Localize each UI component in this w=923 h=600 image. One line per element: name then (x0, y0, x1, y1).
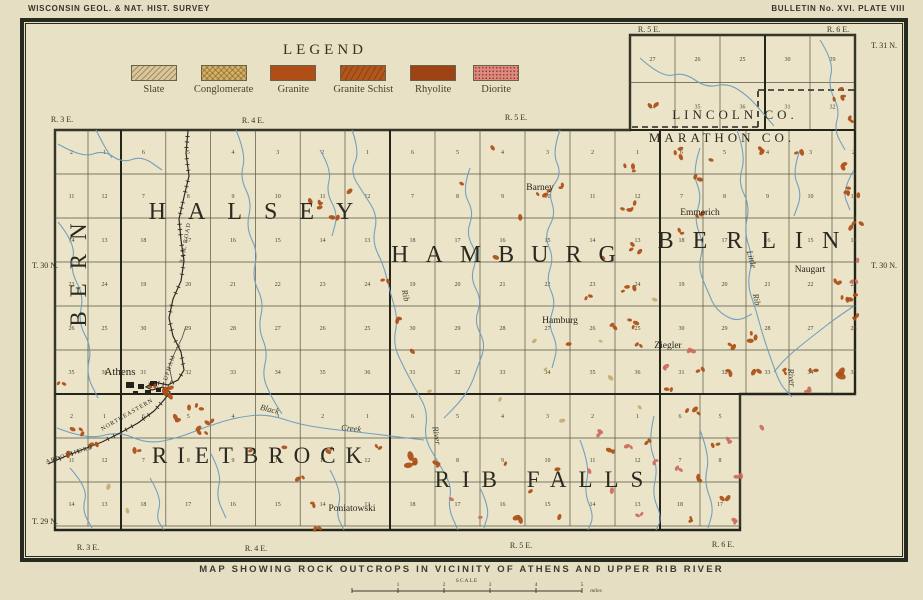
legend-item-slate: Slate (131, 65, 177, 95)
legend-label: Conglomerate (194, 84, 253, 95)
scale-title: SCALE (456, 578, 478, 584)
scale-tick-label: 4 (535, 582, 538, 588)
legend-label: Slate (143, 84, 164, 95)
scale-tick-label: 3 (489, 582, 492, 588)
legend-label: Diorite (481, 84, 511, 95)
map-legend: LEGEND SlateConglomerateGraniteGranite S… (118, 42, 532, 95)
legend-swatch (473, 65, 519, 81)
legend-row: SlateConglomerateGraniteGranite SchistRh… (118, 65, 532, 95)
scale-tick-label: 2 (443, 582, 446, 588)
scale-units: miles (590, 588, 602, 594)
legend-item-diorite: Diorite (473, 65, 519, 95)
legend-label: Granite (278, 84, 310, 95)
plate-page: WISCONSIN GEOL. & NAT. HIST. SURVEY BULL… (0, 0, 923, 600)
map-paper (25, 23, 903, 557)
legend-swatch (340, 65, 386, 81)
map-caption: MAP SHOWING ROCK OUTCROPS IN VICINITY OF… (0, 564, 923, 575)
plate-frame (20, 18, 908, 562)
scale-bar: 12345SCALEmiles (352, 578, 602, 594)
legend-label: Granite Schist (333, 84, 393, 95)
legend-swatch (131, 65, 177, 81)
legend-item-rhyolite: Rhyolite (410, 65, 456, 95)
legend-swatch (201, 65, 247, 81)
legend-item-conglomerate: Conglomerate (194, 65, 253, 95)
survey-title: WISCONSIN GEOL. & NAT. HIST. SURVEY (28, 4, 210, 13)
legend-item-granite-schist: Granite Schist (333, 65, 393, 95)
legend-title: LEGEND (118, 42, 532, 59)
scale-tick-label: 5 (581, 582, 584, 588)
legend-item-granite: Granite (270, 65, 316, 95)
legend-swatch (270, 65, 316, 81)
scale-tick-label: 1 (397, 582, 400, 588)
legend-swatch (410, 65, 456, 81)
legend-label: Rhyolite (415, 84, 451, 95)
bulletin-plate-number: BULLETIN No. XVI. PLATE VIII (771, 4, 905, 13)
